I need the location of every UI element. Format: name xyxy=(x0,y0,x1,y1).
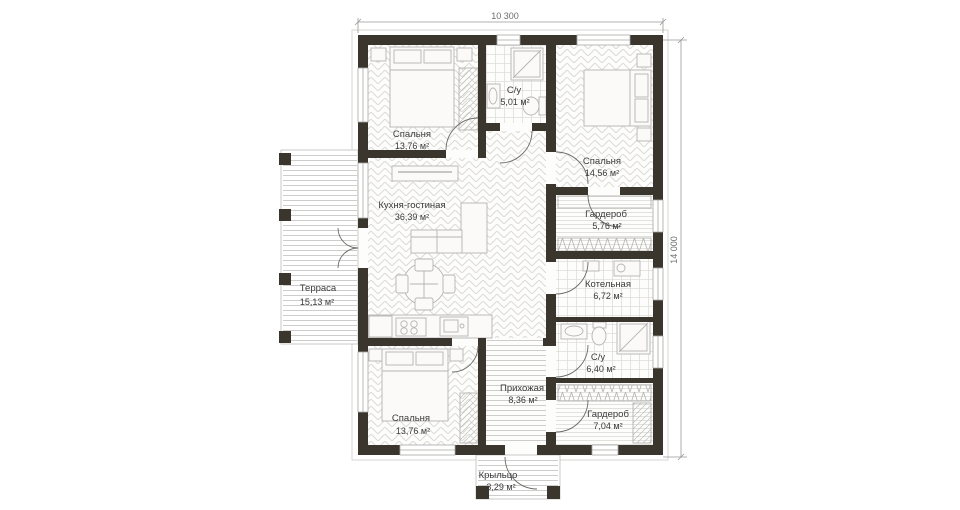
window-bathroom-bottom xyxy=(653,336,663,368)
room-area-bedroom-top-left: 13,76 м² xyxy=(395,141,429,151)
dimension-width-label: 10 300 xyxy=(491,11,519,21)
room-area-boiler: 6,72 м² xyxy=(593,291,622,301)
window-bottom-bedroom xyxy=(400,445,455,455)
floor-plan-svg: 10 300 14 000 Спальня 13,76 м² С/у 5,01 … xyxy=(0,0,960,510)
room-label-boiler: Котельная xyxy=(585,279,631,290)
room-label-wardrobe-bottom: Гардероб xyxy=(587,409,629,420)
window-bedroom-bottom-left xyxy=(358,352,368,412)
floor-plan-page: 10 300 14 000 Спальня 13,76 м² С/у 5,01 … xyxy=(0,0,960,510)
window-bedroom-top-right xyxy=(577,35,630,45)
room-area-terrace: 15,13 м² xyxy=(300,297,334,307)
floor-corridor xyxy=(486,131,546,158)
window-kitchen-terrace xyxy=(358,163,368,218)
room-area-hallway: 8,36 м² xyxy=(508,395,537,405)
room-area-wardrobe-top: 5,76 м² xyxy=(592,221,621,231)
room-label-bedroom-top-left: Спальня xyxy=(393,129,431,140)
room-label-wardrobe-top: Гардероб xyxy=(585,209,627,220)
room-label-hallway: Прихожая xyxy=(500,383,544,394)
room-label-kitchen-living: Кухня-гостиная xyxy=(378,200,445,211)
room-label-bathroom-bottom: С/у xyxy=(591,352,606,363)
dimension-height-label: 14 000 xyxy=(669,236,679,264)
room-label-bedroom-bottom: Спальня xyxy=(392,413,430,424)
room-label-terrace: Терраса xyxy=(300,283,337,294)
terrace-structure xyxy=(279,150,358,344)
room-label-bedroom-top-right: Спальня xyxy=(583,156,621,167)
window-bedroom-top-left xyxy=(358,68,368,122)
room-area-bedroom-bottom: 13,76 м² xyxy=(396,426,430,436)
floor-hallway-passage xyxy=(487,338,543,346)
room-area-bedroom-top-right: 14,56 м² xyxy=(585,168,619,178)
room-label-bathroom-top: С/у xyxy=(507,85,522,96)
room-area-porch: 3,29 м² xyxy=(486,482,515,492)
room-area-wardrobe-bottom: 7,04 м² xyxy=(593,421,622,431)
window-boiler xyxy=(653,268,663,300)
room-label-porch: Крыльцо xyxy=(479,470,518,481)
window-wardrobe-top-right xyxy=(653,200,663,232)
window-bathroom-top xyxy=(497,35,520,45)
room-area-kitchen-living: 36,39 м² xyxy=(395,212,429,222)
room-area-bathroom-top: 5,01 м² xyxy=(500,97,529,107)
window-bottom-wardrobe xyxy=(592,445,618,455)
room-area-bathroom-bottom: 6,40 м² xyxy=(586,364,615,374)
